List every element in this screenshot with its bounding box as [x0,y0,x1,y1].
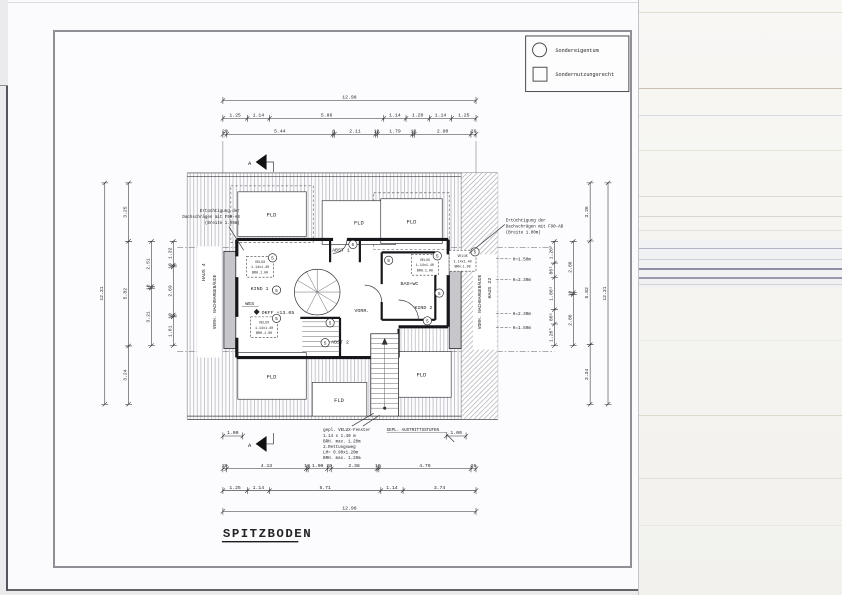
height-label: H=2.30m [513,278,532,283]
neighbor-left-label: VERH. NACHBARGEBÄUDE [211,274,218,329]
dim-label: 3.26 [584,206,590,218]
annotation-line: Dachschrägen mit F90-AB [506,225,564,230]
dim-label: 12.98 [342,506,356,512]
unit-marker: 5 [438,291,441,297]
height-leader-lines [496,259,511,327]
paper-stack [638,0,842,595]
height-label: H=1.50m [513,326,532,331]
paper-stack-line [639,88,842,89]
height-label: H=1.50m [513,257,532,262]
room-label-abst1: ABST 1 [332,247,350,253]
section-marker-top: A [248,154,273,172]
section-marker-bottom: A [248,433,273,452]
floor-plan-svg: VELUX 1.14x1.40 BRH.1.00 5 VELUX 1.14x1.… [55,32,630,566]
dim-label: 1.61 [167,325,173,337]
drawing-title: SPITZBODEN [222,527,312,541]
dim-chain-right-b: 2.86102.86 [567,239,576,348]
dim-label: 3.74 [434,485,446,491]
paper-stack-line [639,230,842,231]
unit-marker: 5 [324,340,327,346]
velux-box: VELUX 1.14x1.40 BRH.1.00 5 [449,248,479,272]
dim-label: 1.14 [386,485,398,491]
paper-stack-line [639,196,842,197]
dim-chain-one-right: 1.00 [444,430,468,439]
dim-label: 1.14 [435,113,447,119]
dim-chain-top-row2: 1.251.145.861.141.201.141.25 [221,113,478,122]
dim-label: 1.25 [458,113,470,119]
annotation-line: Dachschrägen mit F90-AB [182,215,240,220]
unit-marker: 5 [271,256,274,262]
paper-stack-line [639,525,842,526]
paper-stack-line [639,415,842,416]
dim-label: 4.79 [419,463,431,469]
dim-label: 2.69 [167,285,173,297]
dim-label: 3.24 [123,369,129,381]
dim-label: 2.86 [567,261,573,273]
velux-box: VELUX 1.14x1.40 BRH.1.00 5 [251,314,281,338]
velux-line: VELUX [255,261,265,265]
room-label-kind2: KIND 2 [414,305,432,311]
dim-label: 5.71 [319,485,331,491]
unit-marker: 5 [474,250,477,256]
dim-label: 1.00 [450,430,462,436]
velux-line: VELUX [458,255,468,259]
note-line: 1.14 x 1.40 m [323,435,356,439]
dim-label: 12.98 [342,95,356,101]
dim-label: 4.13 [261,463,273,469]
dim-label: 1.14 [253,485,265,491]
dim-chain-right-c: 1.20⁵80¹1.80¹80¹1.20⁵ [548,239,557,348]
unit-marker: 5 [436,254,439,260]
dim-chain-left-b: 2.51103.21 [145,239,154,348]
room-label-fld: FLD [407,219,417,226]
dim-label: 1.14 [253,113,265,119]
dim-chain-bottom-total: 12.98 [221,506,478,515]
dim-label: 2.90 [437,128,449,134]
unit-marker: 5 [352,242,355,248]
dim-chain-top-total: 12.98 [221,95,478,104]
house-left-label: HAUS 4 [201,263,207,281]
velux-line: VELUX [420,259,430,263]
dim-label: 1.32 [167,247,173,259]
dim-label: 12.31 [602,286,608,300]
note-line: BRH. max. 1.20m [323,440,361,444]
dim-label: 2.11 [349,128,361,134]
window-note: gepl. VELUX-Fenster 1.14 x 1.40 m BRH. m… [323,413,380,461]
dim-chain-bottom-row2: 1.251.145.711.143.74 [221,485,478,494]
dim-label: 1.25 [229,485,241,491]
height-labels: H=1.50m H=2.30m H=2.30m H=1.50m [513,257,532,330]
room-label-kind1: KIND 1 [251,286,269,292]
note-line: 2.Rettungsweg [323,446,356,450]
straight-stair [371,334,399,416]
annotation-line: Ertüchtigung der [200,209,240,214]
velux-line: BRH.1.00 [252,272,268,276]
room-label-wes: WES [245,301,254,307]
floor-level-label: OKFF +13.05 [262,310,295,316]
note-line: BRH. max. 1.20m [323,457,361,461]
velux-line: VELUX [259,321,269,325]
section-letter: A [248,442,252,449]
room-label-fld: FLD [267,212,277,219]
room-label-fld: FLD [267,373,277,380]
dim-label: 12.31 [99,286,105,300]
dim-label: 1.20⁵ [548,245,554,259]
note-line: LM= 0.90x1.20m [323,451,358,455]
dim-label: 1.20 [412,113,424,119]
room-label-fld: FLD [334,397,344,404]
height-label: H=2.30m [513,312,532,317]
dim-chain-one-left: 1.00 [221,430,245,439]
unit-marker: 5 [426,319,429,325]
dim-label: 5.44 [274,128,286,134]
section-letter: A [248,160,252,167]
dim-label: 5.86 [321,113,333,119]
paper-stack-line [639,150,842,151]
steps-note: GEPL. AUSTRITTSSTUFEN [387,429,454,442]
velux-line: 1.14x1.40 [454,260,472,264]
room-label-fld: FLD [354,220,364,227]
room-label-bad-wc: BAD+WC [401,281,419,287]
unit-marker: 5 [275,288,278,294]
velux-line: BRH.1.00 [455,266,471,270]
dim-chain-left-c: 1.32102.69101.61 [167,239,176,348]
dim-label: 1.79 [389,128,401,134]
legend-label: Sondereigentum [555,48,598,54]
paper-stack-line [639,216,842,217]
dim-label: 2.86 [567,314,573,326]
paper-stack-line [639,248,842,249]
dim-label: 5.82 [584,287,590,299]
dim-label: 5.82 [123,288,129,300]
dim-label: 3.34 [584,369,590,381]
unit-marker: 5 [275,316,278,322]
dim-label: 2.51 [145,258,151,270]
dim-chain-right-a: 3.265.823.34 [584,181,593,407]
paper-stack-line [639,12,842,13]
annotation-line: Ertüchtigung der [506,219,546,224]
dim-chain-bottom-row1: 204.13101.00202.38104.7926 [221,463,478,472]
paper-stack-line [639,284,842,285]
scanned-floor-plan-page: VELUX 1.14x1.40 BRH.1.00 5 VELUX 1.14x1.… [0,0,842,595]
dim-label: 1.00 [227,430,239,436]
dim-label: 1.14 [389,113,401,119]
dim-label: 80¹ [548,312,554,321]
unit-marker: 5 [387,258,390,264]
dim-label: 1.25 [229,113,241,119]
room-label-vorr: VORR. [354,308,369,314]
room-label-fld: FLD [417,371,427,378]
velux-line: 1.14x1.40 [251,266,269,270]
paper-stack-line [639,478,842,479]
annotation-line: (Breite 1.00m) [506,230,541,235]
dim-chain-right-outer: 12.31 [602,181,611,407]
velux-line: 1.14x1.40 [255,327,273,331]
dim-label: 1.80¹ [548,286,554,300]
dim-label: 2.38 [348,463,360,469]
paper-stack-line [639,115,842,116]
drawing-frame: VELUX 1.14x1.40 BRH.1.00 5 VELUX 1.14x1.… [53,30,632,568]
velux-box: VELUX 1.14x1.40 BRH.1.00 5 [247,254,277,278]
velux-line: 1.14x1.40 [416,264,434,268]
paper-stack-line [639,340,842,341]
house-right-label: HAUS 22 [487,278,493,299]
paper-stack-line [639,277,842,279]
legend: Sondereigentum Sondernutzungsrecht [526,36,629,92]
dim-label: 1.20⁵ [548,328,554,342]
neighbor-right-label: VORH. NACHBARGEBÄUDE [476,274,483,329]
velux-line: BRH.1.00 [256,332,272,336]
dim-label: 3.25 [123,206,129,218]
paper-stack-line [639,259,842,260]
dim-chain-left-a: 3.255.823.24 [123,181,132,407]
unit-marker: 5 [329,321,332,327]
dim-label: 80¹ [548,266,554,275]
page-title: SPITZBODEN [223,527,312,541]
room-label-abst2: ABST 2 [331,340,349,346]
underlying-paper-edge [6,86,8,591]
dim-line [148,239,155,348]
dim-label: 1.00 [312,463,324,469]
legend-label: Sondernutzungsrecht [555,72,614,78]
party-wall-left [224,251,236,348]
label-strip-right [473,254,497,349]
dim-chain-top-row3: 205.4482.11101.79102.9026 [221,128,478,137]
paper-stack-line [639,268,842,270]
velux-line: BRH.1.00 [417,270,433,274]
velux-box: VELUX 1.14x1.40 BRH.1.00 5 [411,252,441,276]
annotation-line: (Breite 1.00m) [205,221,240,226]
note-line: gepl. VELUX-Fenster [323,428,371,433]
dim-chain-left-outer: 12.31 [99,181,108,407]
sheet-top-edge [8,2,638,3]
dim-label: 3.21 [145,311,151,323]
